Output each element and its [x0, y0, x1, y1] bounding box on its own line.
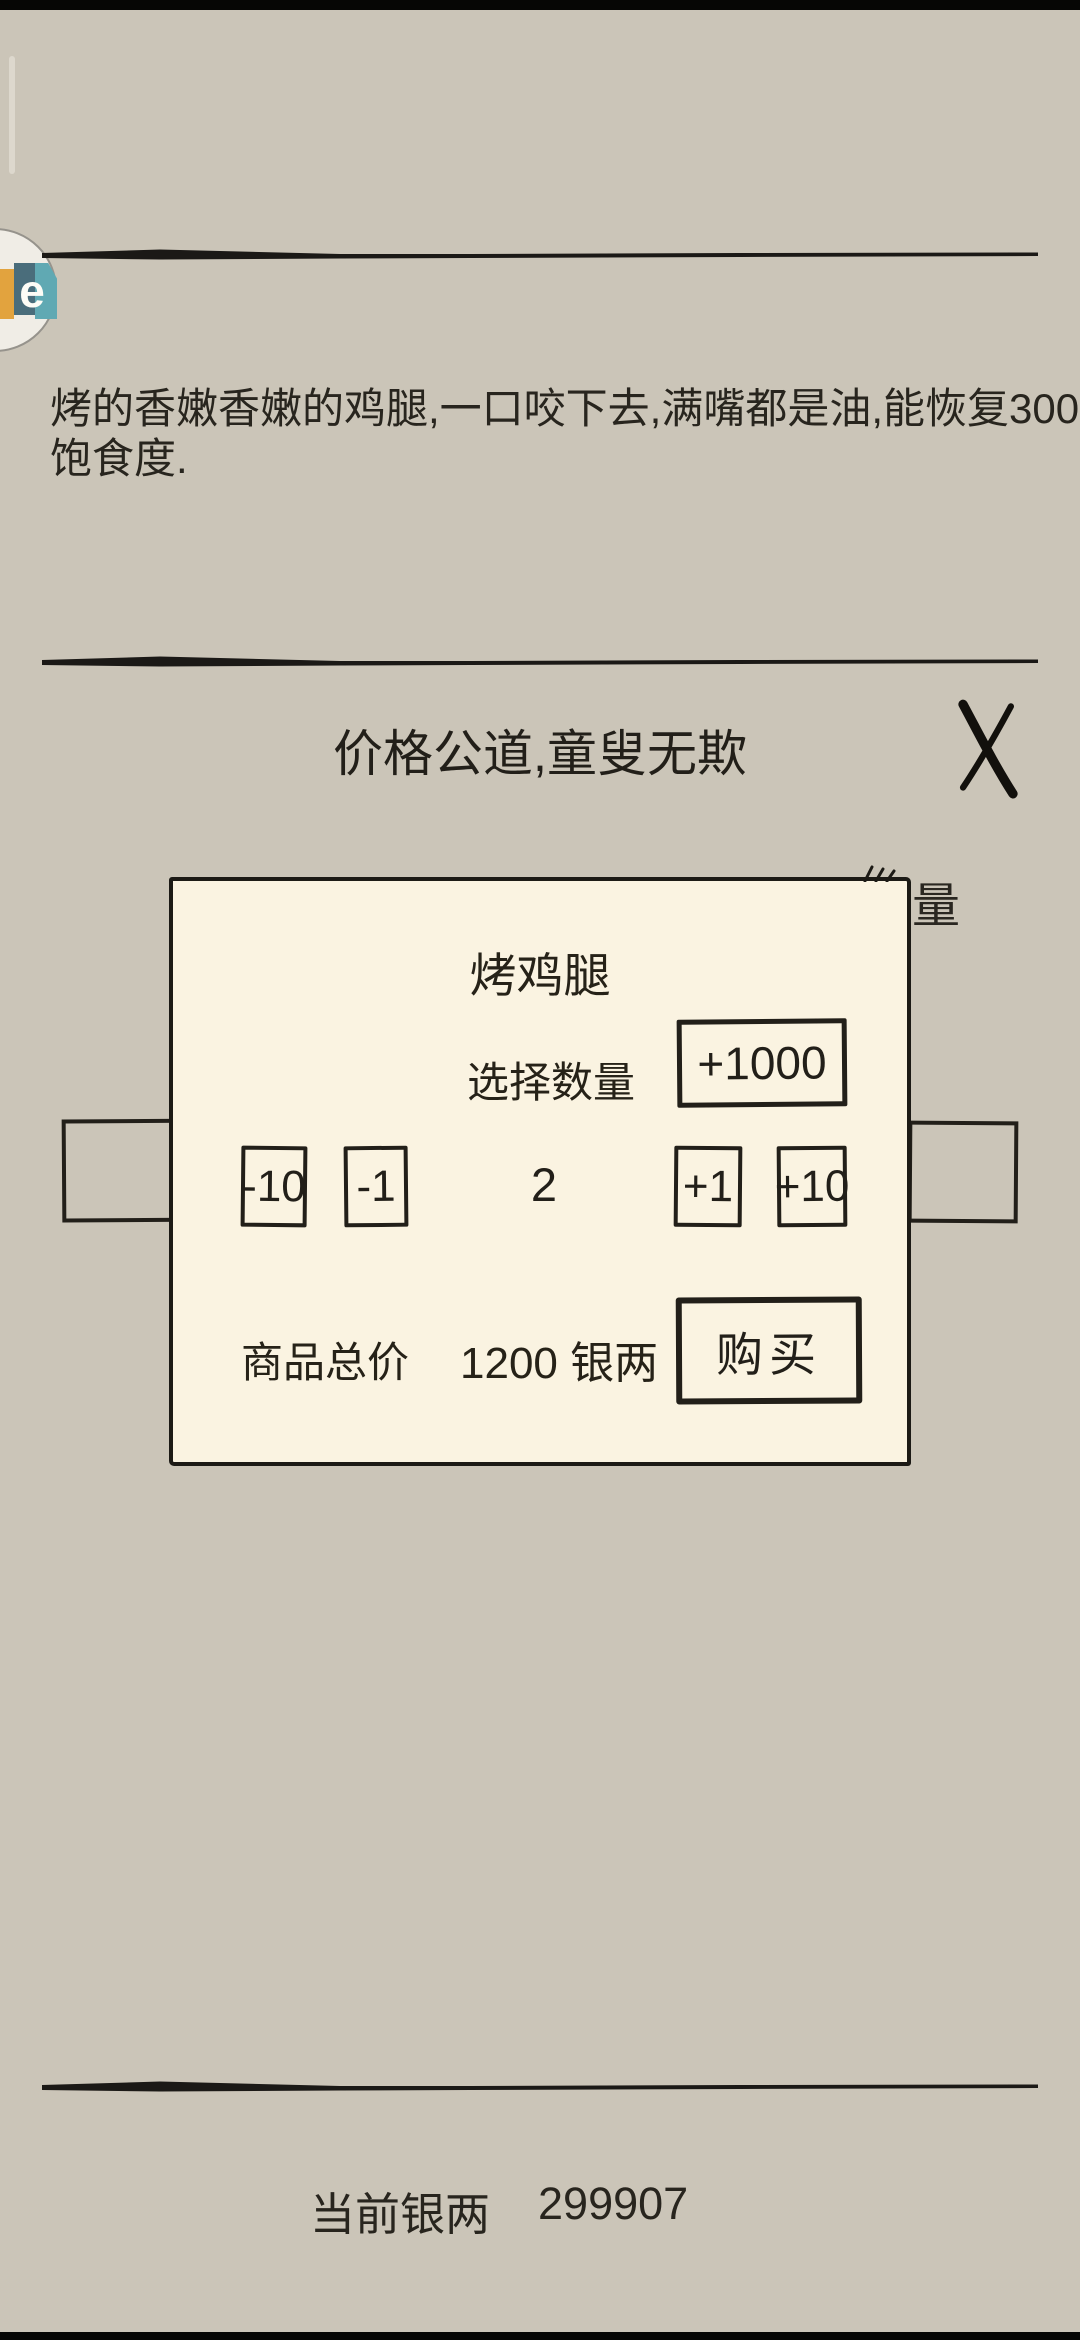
quantity-value: 2: [509, 1157, 579, 1212]
close-icon[interactable]: [948, 696, 1028, 800]
dialog-title: 烤鸡腿: [173, 937, 907, 1006]
plus-1-button[interactable]: +1: [674, 1146, 743, 1228]
navigation-bar-bottom: [0, 2332, 1080, 2340]
plus-10-button[interactable]: +10: [777, 1146, 848, 1228]
buy-button[interactable]: 购买: [676, 1297, 863, 1405]
sketch-corner-hatch: [861, 864, 905, 882]
background-row-box-right: [908, 1121, 1019, 1224]
item-description-line1: 烤的香嫩香嫩的鸡腿,一口咬下去,满嘴都是油,能恢复300点: [50, 384, 1055, 434]
separator-line-top: [40, 248, 1040, 264]
item-description: 烤的香嫩香嫩的鸡腿,一口咬下去,满嘴都是油,能恢复300点 饱食度.: [50, 384, 1055, 484]
badge-letter: e: [7, 264, 57, 318]
silver-balance-value: 299907: [538, 2178, 688, 2243]
total-price-label: 商品总价: [241, 1329, 409, 1390]
shop-motto: 价格公道,童叟无欺: [0, 714, 1080, 786]
minus-10-button[interactable]: -10: [241, 1146, 308, 1228]
separator-line-bottom: [40, 2080, 1040, 2096]
silver-balance-label: 当前银两: [310, 2178, 490, 2243]
item-description-line2: 饱食度.: [50, 434, 1055, 484]
floating-assistant-badge[interactable]: e: [0, 228, 57, 352]
scrollbar-indicator[interactable]: [9, 56, 15, 174]
silver-balance: 当前银两 299907: [310, 2178, 688, 2243]
plus-1000-button[interactable]: +1000: [677, 1018, 848, 1107]
total-price-value: 1200 银两: [460, 1327, 658, 1391]
minus-1-button[interactable]: -1: [344, 1146, 409, 1228]
status-bar-top: [0, 0, 1080, 10]
quantity-select-label: 选择数量: [467, 1049, 635, 1110]
purchase-dialog: 烤鸡腿 选择数量 +1000 -10 -1 2 +1 +10 商品总价 1200…: [169, 877, 911, 1466]
separator-line-middle: [40, 655, 1040, 671]
